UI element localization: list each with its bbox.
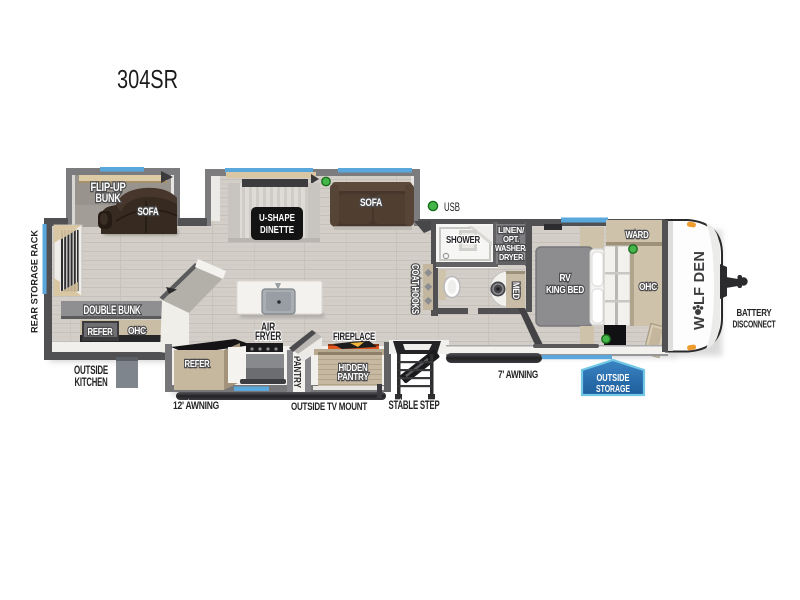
svg-text:SOFA: SOFA — [138, 206, 159, 218]
svg-text:W: W — [692, 316, 708, 330]
svg-text:OUTSIDE: OUTSIDE — [74, 365, 108, 377]
svg-text:FRYER: FRYER — [255, 331, 282, 343]
svg-text:OHC: OHC — [128, 325, 147, 337]
svg-text:KING BED: KING BED — [546, 284, 585, 296]
svg-text:BUNK: BUNK — [96, 193, 122, 205]
svg-text:KITCHEN: KITCHEN — [75, 377, 108, 389]
svg-text:REFER: REFER — [88, 326, 114, 338]
svg-text:DRYER: DRYER — [499, 253, 523, 262]
svg-text:SOFA: SOFA — [360, 197, 382, 209]
svg-text:STABLE STEP: STABLE STEP — [389, 400, 440, 412]
svg-text:DISCONNECT: DISCONNECT — [733, 319, 777, 331]
svg-text:LINEN/: LINEN/ — [498, 226, 525, 235]
svg-text:PANTRY: PANTRY — [338, 371, 369, 383]
svg-text:OUTSIDE TV MOUNT: OUTSIDE TV MOUNT — [291, 401, 367, 413]
svg-text:WARD: WARD — [626, 229, 650, 241]
svg-text:REFER: REFER — [185, 358, 211, 370]
svg-text:COAT HOOKS: COAT HOOKS — [409, 264, 420, 314]
svg-text:7' AWNING: 7' AWNING — [498, 369, 538, 381]
svg-text:RV: RV — [560, 272, 571, 284]
svg-text:USB: USB — [444, 200, 460, 214]
svg-text:OPT.: OPT. — [503, 235, 519, 244]
svg-text:304SR: 304SR — [117, 64, 178, 94]
svg-text:PANTRY: PANTRY — [291, 356, 302, 388]
svg-text:FIREPLACE: FIREPLACE — [333, 331, 375, 343]
svg-text:OHC: OHC — [639, 281, 658, 293]
svg-text:12' AWNING: 12' AWNING — [173, 400, 219, 412]
svg-text:WASHER/: WASHER/ — [495, 244, 528, 253]
svg-text:BATTERY: BATTERY — [737, 307, 772, 319]
svg-text:DINETTE: DINETTE — [260, 224, 294, 236]
svg-text:U-SHAPE: U-SHAPE — [259, 212, 295, 224]
svg-text:STORAGE: STORAGE — [596, 383, 630, 395]
svg-text:LF DEN: LF DEN — [692, 251, 708, 305]
svg-text:MED: MED — [511, 282, 521, 300]
svg-text:SHOWER: SHOWER — [446, 234, 481, 246]
svg-text:DOUBLE BUNK: DOUBLE BUNK — [84, 305, 142, 317]
svg-text:REAR STORAGE RACK: REAR STORAGE RACK — [30, 230, 41, 333]
